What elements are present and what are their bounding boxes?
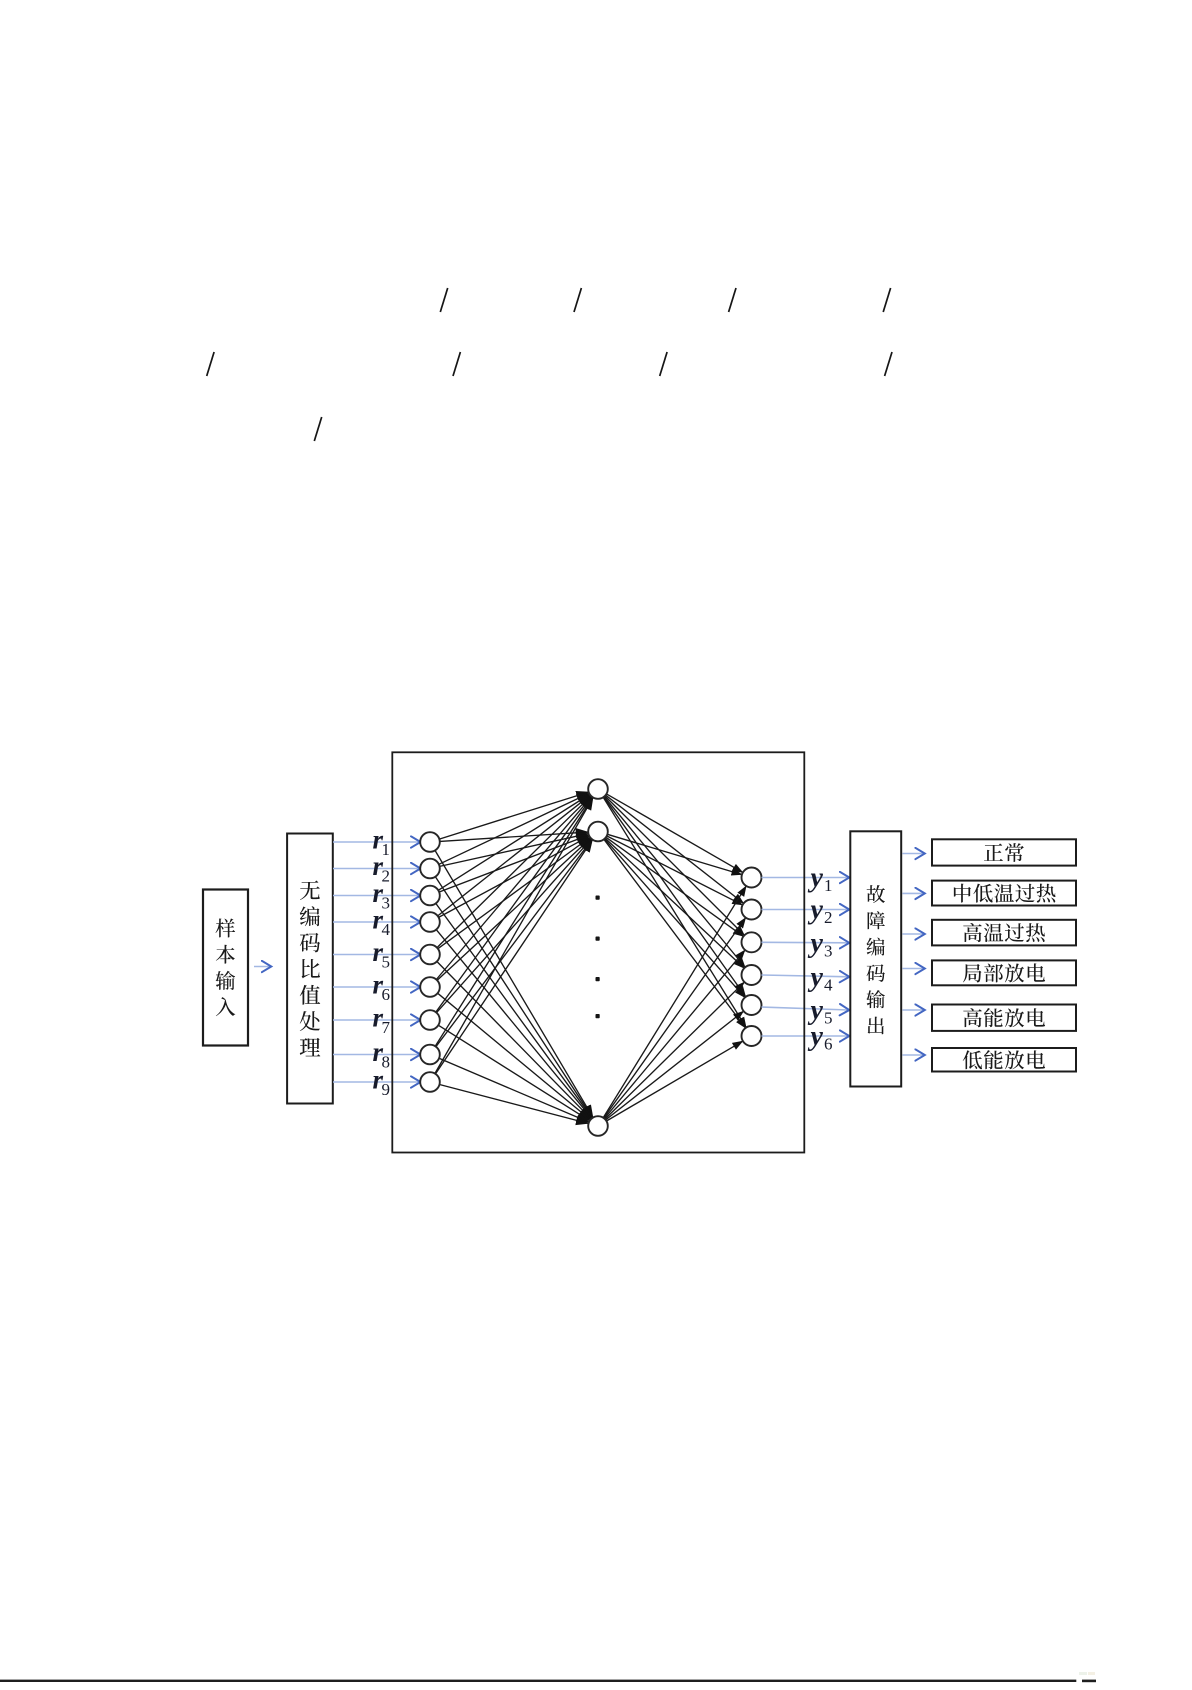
svg-text:3: 3 [824,941,833,960]
svg-text:6: 6 [824,1035,833,1054]
svg-text:y: y [808,962,824,993]
svg-text:1: 1 [824,876,833,895]
svg-text:4: 4 [824,975,833,994]
svg-text:y: y [808,895,824,926]
svg-text:y: y [808,863,824,894]
svg-text:7: 7 [382,1018,391,1037]
svg-text:2: 2 [824,908,833,927]
svg-text:6: 6 [382,985,391,1004]
svg-text:5: 5 [824,1009,833,1028]
svg-text:y: y [808,928,824,959]
svg-text:9: 9 [382,1080,391,1099]
svg-text:y: y [808,1021,824,1052]
